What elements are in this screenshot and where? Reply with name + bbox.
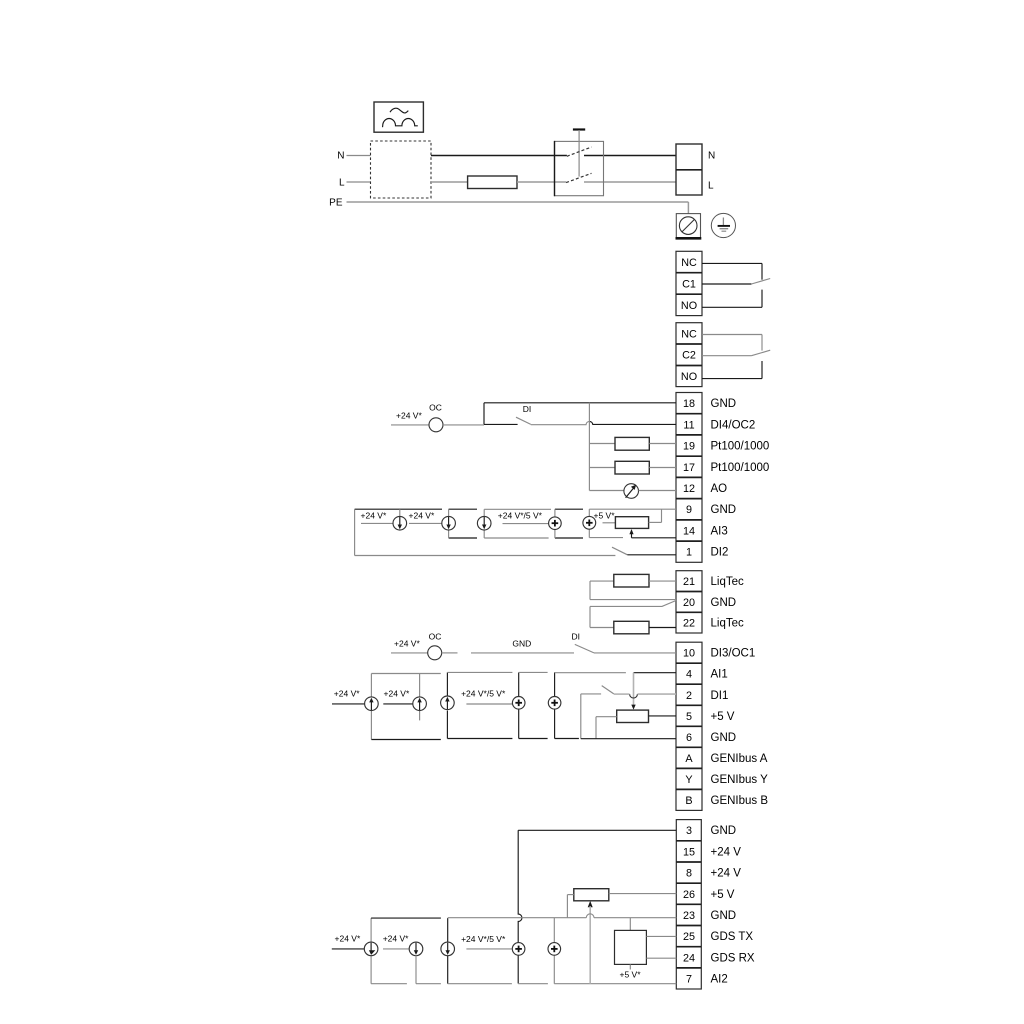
svg-text:DI: DI <box>571 631 580 641</box>
svg-text:+24 V*: +24 V* <box>394 639 420 649</box>
svg-text:GND: GND <box>711 825 737 837</box>
svg-text:GDS RX: GDS RX <box>711 952 755 964</box>
svg-text:6: 6 <box>686 732 692 744</box>
svg-text:DI4/OC2: DI4/OC2 <box>711 419 756 431</box>
svg-text:+24 V: +24 V <box>711 846 742 858</box>
svg-text:+24 V*: +24 V* <box>383 934 409 944</box>
svg-text:GND: GND <box>711 504 737 516</box>
svg-text:17: 17 <box>683 462 695 474</box>
svg-text:L: L <box>708 180 714 191</box>
svg-text:N: N <box>708 151 715 162</box>
svg-text:+24 V*/5 V*: +24 V*/5 V* <box>461 689 506 699</box>
svg-text:+24 V*/5 V*: +24 V*/5 V* <box>498 510 543 520</box>
svg-text:3: 3 <box>686 825 692 837</box>
svg-text:+24 V*: +24 V* <box>361 511 387 521</box>
svg-text:2: 2 <box>686 690 692 702</box>
svg-text:AI1: AI1 <box>711 669 728 681</box>
svg-text:A: A <box>685 753 693 765</box>
svg-text:LiqTec: LiqTec <box>711 618 744 630</box>
svg-text:NO: NO <box>681 371 697 383</box>
svg-text:GDS TX: GDS TX <box>711 931 754 943</box>
svg-text:10: 10 <box>683 648 695 660</box>
svg-text:1: 1 <box>686 547 692 559</box>
svg-text:OC: OC <box>429 403 442 413</box>
svg-text:GENIbus Y: GENIbus Y <box>711 774 769 786</box>
svg-text:15: 15 <box>683 846 695 858</box>
svg-text:N: N <box>337 151 344 162</box>
svg-text:DI3/OC1: DI3/OC1 <box>711 648 756 660</box>
svg-text:+24 V*: +24 V* <box>384 689 410 699</box>
svg-text:AI3: AI3 <box>711 526 728 538</box>
svg-text:PE: PE <box>329 198 343 209</box>
svg-text:+5 V: +5 V <box>711 711 735 723</box>
svg-text:B: B <box>685 795 692 807</box>
svg-text:LiqTec: LiqTec <box>711 576 744 588</box>
svg-text:4: 4 <box>686 669 692 681</box>
svg-text:+5 V*: +5 V* <box>620 970 642 980</box>
svg-text:7: 7 <box>686 974 692 986</box>
svg-text:18: 18 <box>683 398 695 410</box>
svg-text:+5 V*: +5 V* <box>594 510 616 520</box>
svg-text:GND: GND <box>512 639 531 649</box>
svg-text:22: 22 <box>683 618 695 630</box>
svg-text:GND: GND <box>711 398 737 410</box>
svg-text:Pt100/1000: Pt100/1000 <box>711 441 770 453</box>
svg-text:GND: GND <box>711 732 737 744</box>
svg-text:+5 V: +5 V <box>711 889 735 901</box>
svg-text:AI2: AI2 <box>711 974 728 986</box>
svg-text:25: 25 <box>683 931 695 943</box>
svg-text:DI2: DI2 <box>711 547 729 559</box>
svg-text:5: 5 <box>686 711 692 723</box>
svg-text:OC: OC <box>429 632 442 642</box>
svg-text:8: 8 <box>686 868 692 880</box>
svg-text:GND: GND <box>711 910 737 922</box>
svg-text:GND: GND <box>711 597 737 609</box>
svg-text:C2: C2 <box>682 350 696 362</box>
svg-text:DI1: DI1 <box>711 690 729 702</box>
svg-text:+24 V*: +24 V* <box>334 689 360 699</box>
svg-text:GENIbus A: GENIbus A <box>711 753 768 765</box>
svg-text:21: 21 <box>683 576 695 588</box>
svg-text:AO: AO <box>711 483 728 495</box>
svg-text:+24 V: +24 V <box>711 868 742 880</box>
svg-text:19: 19 <box>683 441 695 453</box>
svg-text:C1: C1 <box>682 279 696 291</box>
svg-text:+24 V*: +24 V* <box>409 511 435 521</box>
svg-text:26: 26 <box>683 889 695 901</box>
svg-text:DI: DI <box>523 404 532 414</box>
svg-text:11: 11 <box>683 419 694 431</box>
svg-text:+24 V*: +24 V* <box>335 934 361 944</box>
svg-text:+24 V*: +24 V* <box>396 410 422 420</box>
svg-text:Pt100/1000: Pt100/1000 <box>711 462 770 474</box>
svg-text:NO: NO <box>681 300 697 312</box>
svg-text:14: 14 <box>683 526 695 538</box>
svg-text:9: 9 <box>686 504 692 516</box>
svg-text:20: 20 <box>683 597 695 609</box>
svg-text:NC: NC <box>681 328 697 340</box>
svg-text:L: L <box>339 178 345 189</box>
svg-text:Y: Y <box>685 774 692 786</box>
svg-text:NC: NC <box>681 257 697 269</box>
svg-text:GENIbus B: GENIbus B <box>711 795 769 807</box>
svg-text:23: 23 <box>683 910 695 922</box>
svg-text:+24 V*/5 V*: +24 V*/5 V* <box>461 934 506 944</box>
svg-text:12: 12 <box>683 483 695 495</box>
svg-text:24: 24 <box>683 952 695 964</box>
